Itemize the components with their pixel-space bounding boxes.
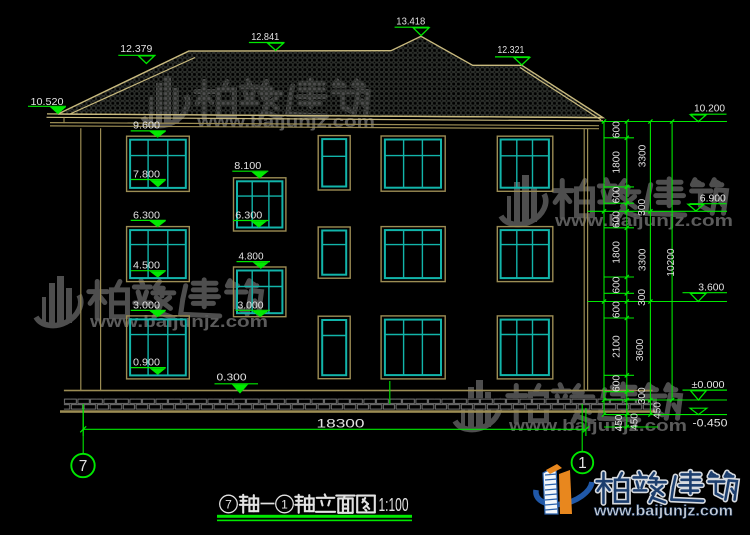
svg-text:6.900: 6.900 xyxy=(700,193,726,204)
svg-text:1800: 1800 xyxy=(612,151,623,174)
svg-text:600: 600 xyxy=(612,375,623,392)
svg-text:12.321: 12.321 xyxy=(497,45,524,56)
svg-text:1800: 1800 xyxy=(612,241,623,264)
svg-text:0.300: 0.300 xyxy=(217,373,247,384)
svg-text:7: 7 xyxy=(225,497,232,511)
svg-text:450: 450 xyxy=(614,414,625,431)
svg-text:6.300: 6.300 xyxy=(235,211,262,222)
svg-text:3300: 3300 xyxy=(638,248,649,271)
svg-text:9.600: 9.600 xyxy=(133,121,160,132)
svg-text:4.500: 4.500 xyxy=(133,261,160,272)
svg-text:1: 1 xyxy=(578,455,587,472)
svg-text:4.800: 4.800 xyxy=(239,252,264,263)
svg-text:www.baijunjz.com: www.baijunjz.com xyxy=(89,312,268,331)
svg-text:3.600: 3.600 xyxy=(698,282,724,293)
svg-text:-0.450: -0.450 xyxy=(693,418,728,430)
svg-text:7.800: 7.800 xyxy=(133,169,160,180)
svg-text:12.841: 12.841 xyxy=(251,32,279,43)
svg-text:450: 450 xyxy=(629,413,640,430)
svg-text:450: 450 xyxy=(652,402,663,419)
svg-text:6.300: 6.300 xyxy=(133,210,160,221)
svg-text:1:100: 1:100 xyxy=(379,494,409,515)
svg-text:300: 300 xyxy=(637,198,648,215)
svg-text:13.418: 13.418 xyxy=(396,17,425,28)
svg-text:600: 600 xyxy=(612,301,623,318)
svg-text:10200: 10200 xyxy=(666,248,677,276)
svg-text:2100: 2100 xyxy=(612,335,623,358)
svg-text:600: 600 xyxy=(612,276,623,293)
svg-text:300: 300 xyxy=(637,289,648,306)
svg-text:0.900: 0.900 xyxy=(133,358,160,369)
svg-text:10.200: 10.200 xyxy=(694,103,725,114)
svg-text:7: 7 xyxy=(79,458,88,475)
svg-text:18300: 18300 xyxy=(317,417,365,431)
svg-text:12.379: 12.379 xyxy=(120,44,152,55)
svg-text:600: 600 xyxy=(612,186,623,203)
svg-text:600: 600 xyxy=(612,211,623,228)
svg-text:3300: 3300 xyxy=(638,144,649,167)
svg-text:±0.000: ±0.000 xyxy=(692,380,725,391)
svg-text:3.000: 3.000 xyxy=(133,300,160,311)
svg-text:1: 1 xyxy=(281,497,288,511)
svg-text:600: 600 xyxy=(612,121,623,138)
svg-text:8.100: 8.100 xyxy=(234,161,261,172)
svg-text:3600: 3600 xyxy=(635,338,646,361)
svg-text:www.baijunjz.com: www.baijunjz.com xyxy=(593,504,733,520)
svg-text:300: 300 xyxy=(637,387,648,404)
